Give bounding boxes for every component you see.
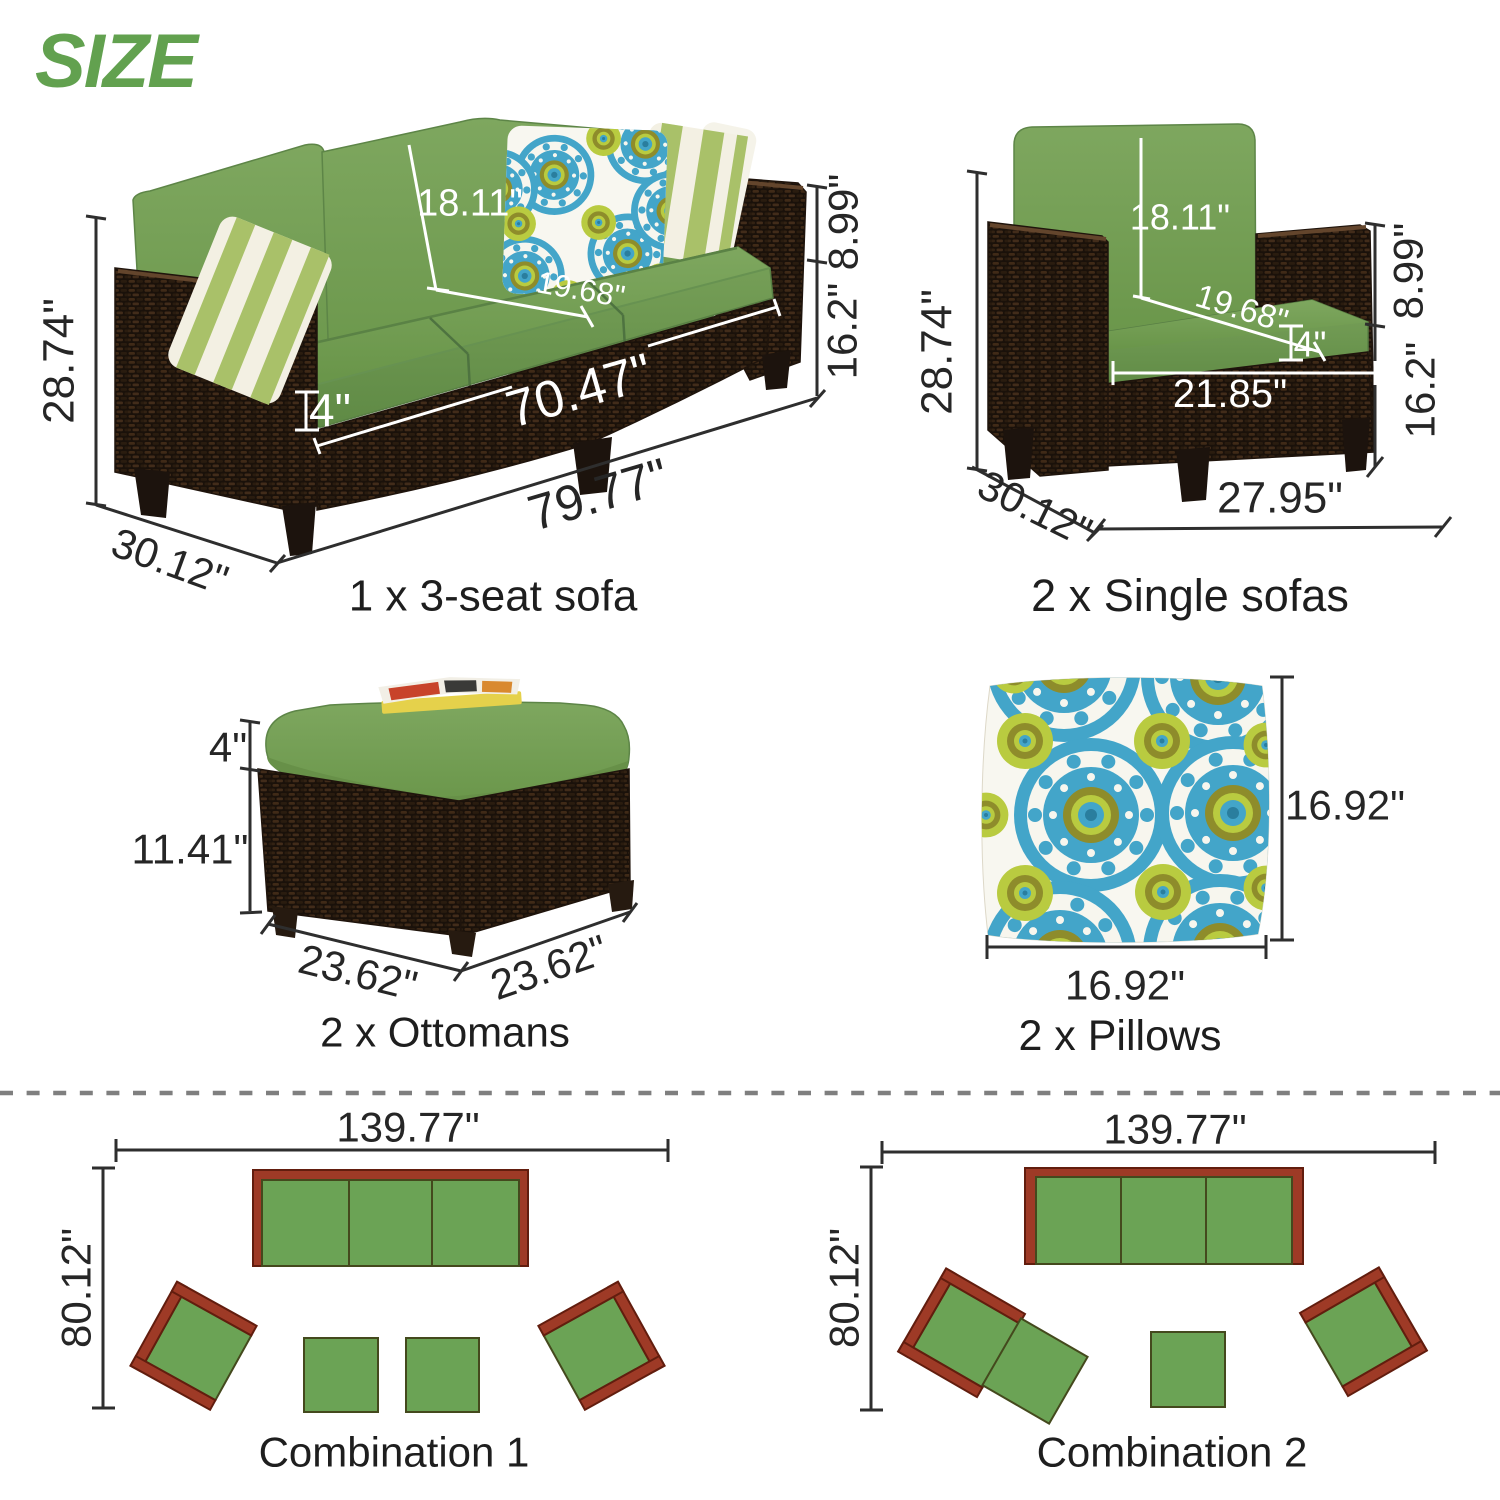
svg-text:16.92": 16.92" [1285, 782, 1405, 829]
svg-text:139.77": 139.77" [1103, 1106, 1246, 1153]
svg-text:4": 4" [209, 724, 247, 771]
svg-text:1 x 3-seat sofa: 1 x 3-seat sofa [349, 571, 638, 620]
svg-text:16.92": 16.92" [1065, 962, 1185, 1009]
svg-text:Combination 1: Combination 1 [259, 1429, 530, 1476]
svg-text:16.2": 16.2" [819, 283, 866, 380]
svg-text:SIZE: SIZE [35, 19, 200, 104]
svg-text:8.99": 8.99" [820, 174, 867, 271]
svg-text:27.95": 27.95" [1217, 473, 1343, 522]
svg-text:2 x Single sofas: 2 x Single sofas [1031, 570, 1349, 621]
svg-text:28.74": 28.74" [912, 289, 961, 415]
svg-text:18.11": 18.11" [417, 182, 523, 224]
svg-text:4": 4" [309, 384, 351, 436]
svg-text:16.2": 16.2" [1397, 342, 1444, 439]
svg-text:139.77": 139.77" [336, 1104, 479, 1151]
svg-text:4": 4" [1294, 324, 1327, 365]
svg-text:80.12": 80.12" [821, 1228, 868, 1348]
svg-text:Combination 2: Combination 2 [1037, 1429, 1308, 1476]
svg-text:21.85": 21.85" [1173, 372, 1287, 416]
svg-text:18.11": 18.11" [1130, 197, 1230, 238]
svg-text:2 x Pillows: 2 x Pillows [1018, 1012, 1221, 1060]
svg-text:8.99": 8.99" [1385, 223, 1432, 320]
svg-text:2 x Ottomans: 2 x Ottomans [320, 1009, 570, 1056]
svg-text:11.41": 11.41" [132, 826, 249, 873]
svg-text:28.74": 28.74" [34, 298, 83, 424]
svg-text:80.12": 80.12" [53, 1228, 100, 1348]
